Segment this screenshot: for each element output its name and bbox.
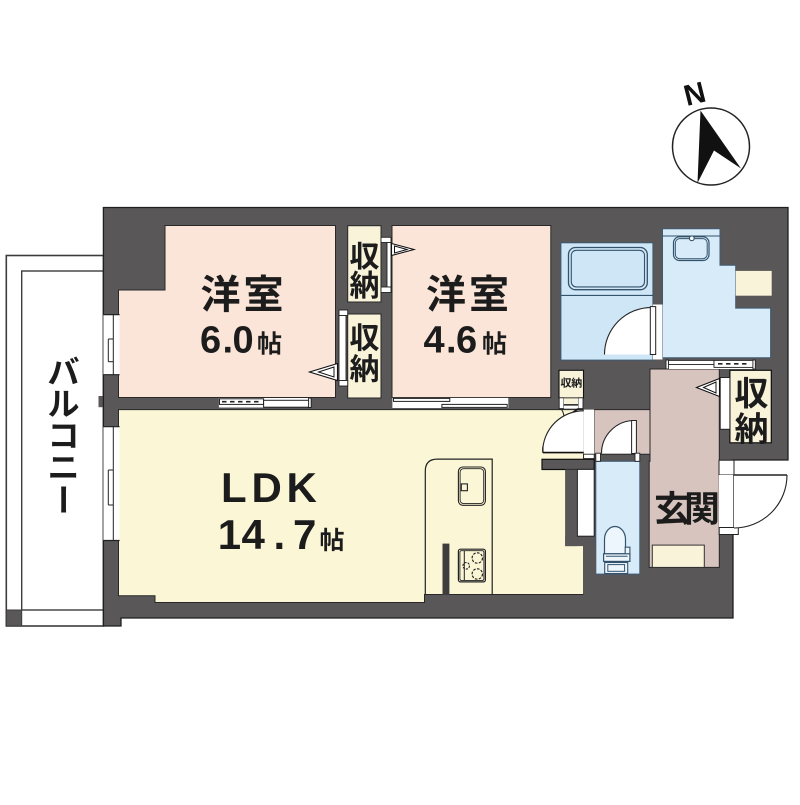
svg-text:6: 6	[200, 320, 221, 362]
svg-text:D: D	[252, 464, 282, 511]
svg-text:.: .	[223, 320, 234, 362]
svg-text:4: 4	[242, 511, 266, 558]
svg-text:K: K	[287, 464, 317, 511]
svg-text:7: 7	[293, 511, 316, 558]
svg-text:0: 0	[233, 320, 254, 362]
svg-text:4: 4	[424, 320, 445, 362]
svg-text:1: 1	[218, 511, 241, 558]
svg-text:L: L	[221, 464, 247, 511]
svg-text:.: .	[274, 511, 286, 558]
svg-text:6: 6	[456, 320, 477, 362]
svg-text:.: .	[446, 320, 457, 362]
